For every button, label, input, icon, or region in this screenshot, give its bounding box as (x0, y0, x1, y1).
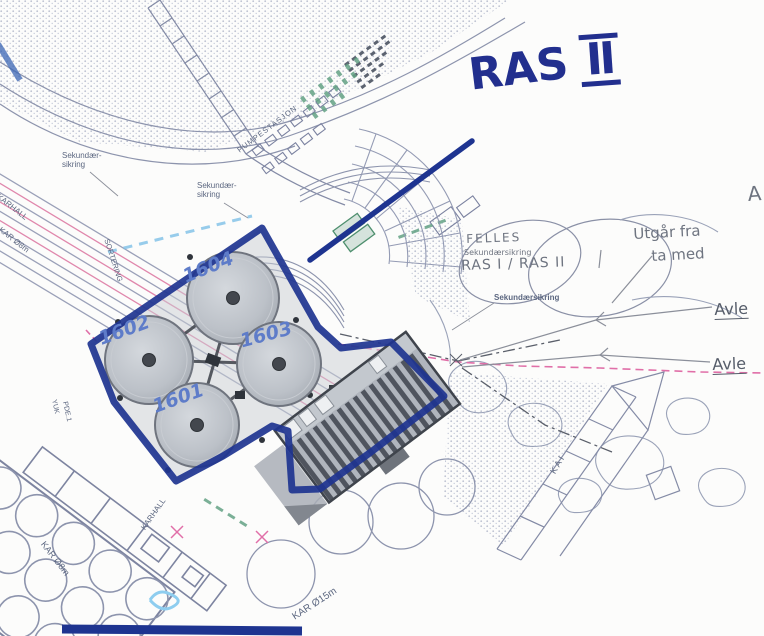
pencil-note-avle-top: Avle (714, 300, 748, 320)
felles-label: FELLES (466, 231, 521, 246)
pencil-fragment-a: A (747, 183, 762, 205)
sekundaersikring-label-1: Sekundær- sikring (62, 152, 102, 169)
embankment-fan (344, 129, 462, 274)
ras2-roman-numeral: II (578, 33, 620, 87)
sekundaersikring-label-3: Sekundærsikring (494, 294, 559, 303)
pencil-note-avle-bottom: Avle (712, 355, 746, 375)
sekundaersikring-label-2: Sekundær- sikring (197, 182, 237, 199)
site-plan-drawing (0, 0, 764, 636)
pencil-note-utgar: Utgår fra (633, 222, 701, 242)
scanned-site-plan: RAS II A Utgår fra ta med Avle Avle FELL… (0, 0, 764, 636)
bottom-left-tank-hall (0, 458, 177, 636)
pencil-note-ta-med: ta med (651, 245, 705, 264)
